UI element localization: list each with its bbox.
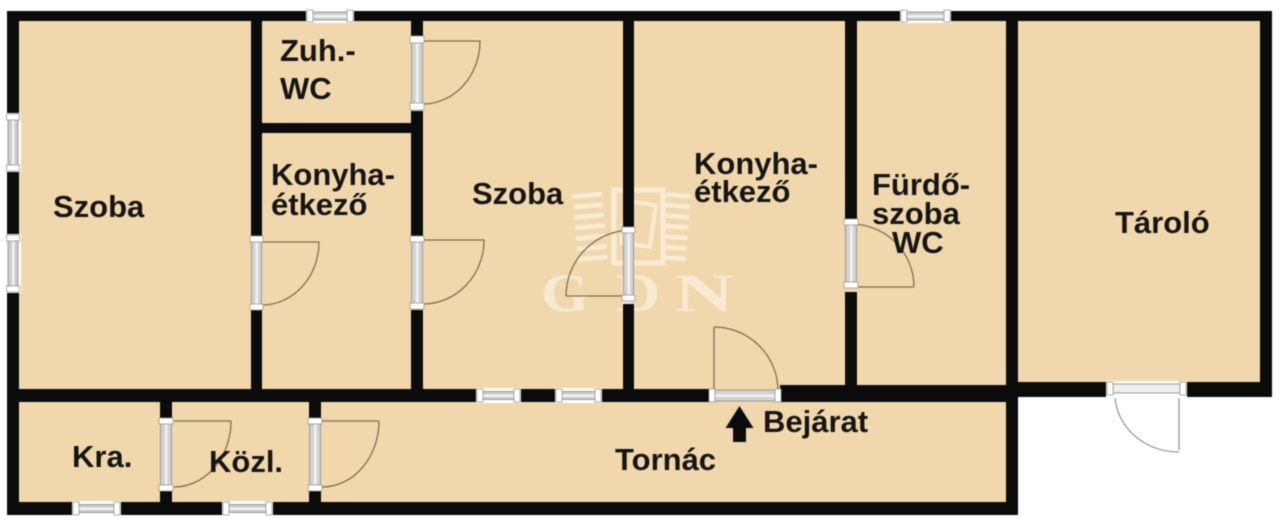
svg-text:Bejárat: Bejárat — [763, 404, 868, 439]
svg-text:WC: WC — [892, 225, 944, 260]
svg-text:WC: WC — [280, 71, 332, 106]
svg-text:Szoba: Szoba — [472, 176, 564, 211]
svg-text:N: N — [674, 263, 734, 323]
svg-text:D: D — [616, 263, 660, 323]
svg-text:Közl.: Közl. — [209, 444, 283, 479]
svg-text:Kra.: Kra. — [72, 439, 132, 474]
svg-text:Zuh.-: Zuh.- — [280, 33, 356, 68]
svg-text:Szoba: Szoba — [53, 189, 145, 224]
svg-text:Tároló: Tároló — [1115, 205, 1210, 240]
svg-text:G: G — [541, 263, 589, 323]
svg-text:étkező: étkező — [271, 187, 367, 222]
svg-text:étkező: étkező — [694, 174, 790, 209]
svg-text:Tornác: Tornác — [615, 442, 716, 477]
